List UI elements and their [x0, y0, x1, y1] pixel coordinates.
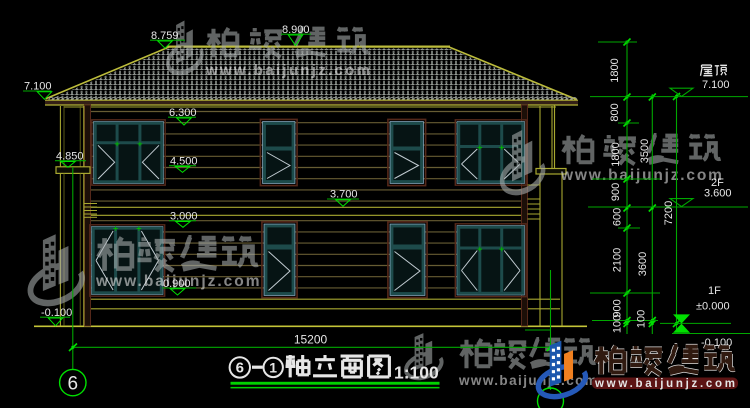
svg-text:2100: 2100	[612, 248, 624, 272]
svg-text:100: 100	[636, 310, 648, 328]
svg-text:3600: 3600	[637, 252, 649, 276]
svg-text:www.baijunjz.com: www.baijunjz.com	[458, 373, 597, 388]
svg-text:6: 6	[236, 360, 244, 377]
svg-text:1800: 1800	[610, 142, 622, 166]
svg-text:7.100: 7.100	[702, 79, 730, 91]
svg-text:3.600: 3.600	[704, 188, 732, 200]
svg-text:100: 100	[612, 315, 624, 333]
svg-text:3500: 3500	[639, 139, 651, 163]
svg-text:1800: 1800	[609, 58, 621, 82]
svg-text:1: 1	[269, 360, 277, 376]
svg-text:15200: 15200	[294, 332, 328, 346]
svg-text:7200: 7200	[663, 201, 675, 225]
svg-text:600: 600	[612, 208, 624, 226]
svg-text:800: 800	[609, 103, 621, 121]
svg-text:6: 6	[68, 374, 79, 395]
svg-text:1:100: 1:100	[394, 363, 439, 383]
svg-text:±0.000: ±0.000	[696, 301, 730, 313]
svg-text:900: 900	[610, 183, 622, 201]
svg-text:1F: 1F	[708, 285, 721, 297]
